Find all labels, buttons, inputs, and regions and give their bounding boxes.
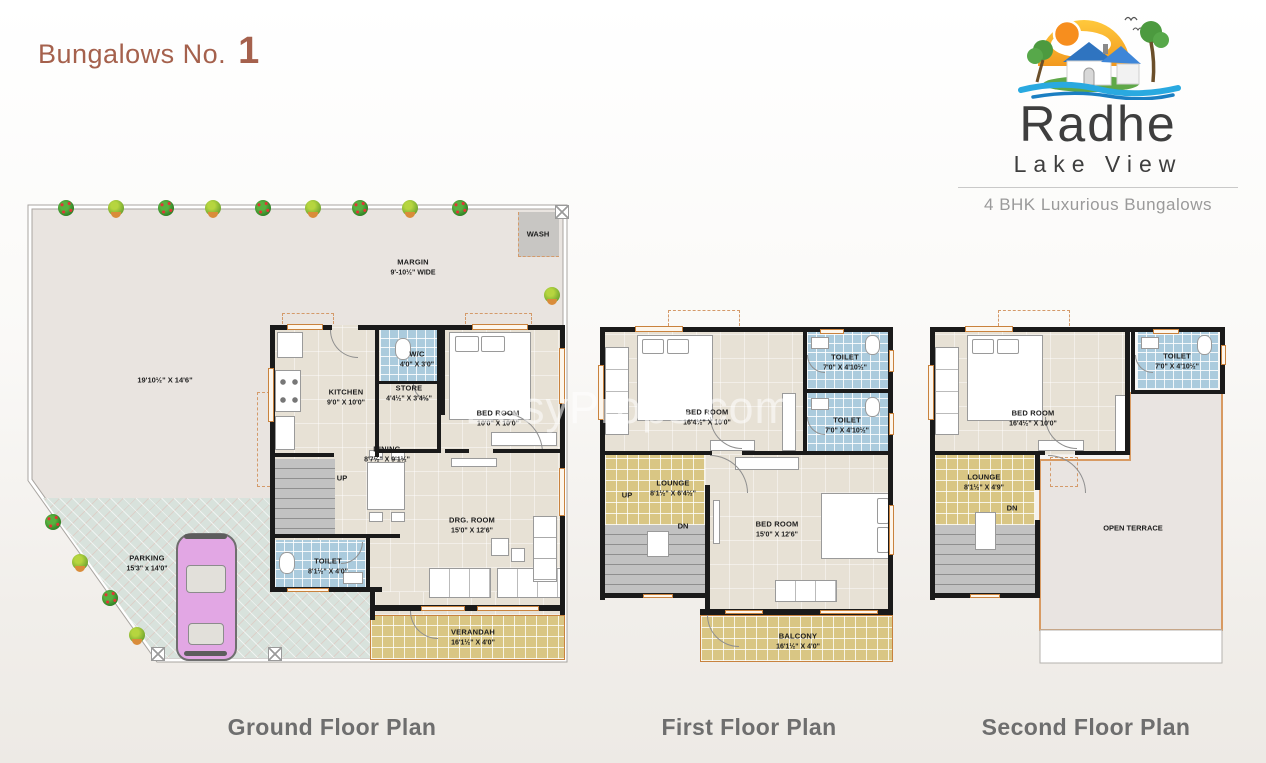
window xyxy=(477,606,539,611)
wall xyxy=(1035,520,1040,598)
wall xyxy=(930,451,1045,455)
logo-subtitle: Lake View xyxy=(950,151,1246,178)
wall xyxy=(1075,451,1130,455)
room-label-wc: W/C 4'0" X 3'0" xyxy=(400,349,434,370)
room-label-balcony: BALCONY 16'1½" X 4'0" xyxy=(776,631,820,652)
washbasin-icon xyxy=(1141,337,1159,349)
caption-second-floor: Second Floor Plan xyxy=(982,714,1191,741)
shelf xyxy=(533,516,557,582)
window xyxy=(1153,329,1179,334)
logo-graphic-icon xyxy=(1013,4,1183,100)
wall xyxy=(358,325,565,330)
wall xyxy=(1035,455,1040,490)
window xyxy=(643,594,673,598)
wall xyxy=(1131,332,1135,394)
washbasin-icon xyxy=(811,337,829,349)
wall xyxy=(705,485,710,609)
plant-icon xyxy=(452,200,468,216)
projection-dashed xyxy=(465,313,532,324)
window xyxy=(421,606,465,611)
projection-dashed xyxy=(668,310,740,326)
car-icon xyxy=(176,533,237,661)
second-floor-plan: BED ROOM 16'4½" X 10'0" TOILET 7'0" X 4'… xyxy=(925,305,1240,675)
wall xyxy=(270,453,334,457)
plant-icon xyxy=(58,200,74,216)
plant-icon xyxy=(45,514,61,530)
wall xyxy=(742,451,890,455)
pillow-icon xyxy=(997,339,1019,354)
stairs-up-label: UP xyxy=(337,474,347,483)
window xyxy=(559,468,565,516)
window xyxy=(268,368,274,422)
wall xyxy=(366,538,370,592)
room-label-store: STORE 4'4½" X 3'4½" xyxy=(386,383,432,404)
stairs-dn-label: DN xyxy=(678,522,689,531)
caption-ground-floor: Ground Floor Plan xyxy=(228,714,437,741)
room-label-toilet: TOILET 8'1½" X 4'0" xyxy=(308,556,348,577)
stairs-dn-label: DN xyxy=(1007,504,1018,513)
gate-marker-icon xyxy=(555,205,569,219)
toilet-pot-icon xyxy=(279,552,295,574)
staircase xyxy=(272,459,335,534)
page-title: Bungalows No. 1 xyxy=(38,30,259,73)
room-label-toilet2: TOILET 7'0" X 4'10½" xyxy=(825,415,869,436)
logo-divider xyxy=(958,187,1238,188)
window xyxy=(970,594,1000,598)
title-number: 1 xyxy=(238,30,259,73)
wall xyxy=(1131,390,1225,394)
plant-icon xyxy=(402,200,418,216)
plant-icon xyxy=(129,627,145,643)
window xyxy=(820,610,878,614)
title-text: Bungalows No. xyxy=(38,39,226,70)
wardrobe xyxy=(735,457,799,470)
window xyxy=(725,610,763,614)
stair-landing xyxy=(975,512,996,550)
window xyxy=(287,588,329,592)
window xyxy=(889,505,894,555)
open-terrace-label: OPEN TERRACE xyxy=(1103,524,1163,533)
coffee-table-icon xyxy=(491,538,509,556)
wall xyxy=(270,534,400,538)
window xyxy=(889,350,894,372)
chair-icon xyxy=(369,512,383,522)
room-label-toilet: TOILET 7'0" X 4'10½" xyxy=(1155,351,1199,372)
toilet-pot-icon xyxy=(1197,335,1212,355)
dining-table-icon xyxy=(367,462,405,510)
window xyxy=(287,324,323,330)
window xyxy=(820,329,844,334)
plant-icon xyxy=(72,554,88,570)
pillow-icon xyxy=(667,339,689,354)
gate-marker-icon xyxy=(151,647,165,661)
sofa-icon xyxy=(935,347,959,435)
coffee-table-icon xyxy=(511,548,525,562)
plant-icon xyxy=(255,200,271,216)
plant-icon xyxy=(352,200,368,216)
plant-icon xyxy=(158,200,174,216)
wall xyxy=(441,325,445,415)
plant-icon xyxy=(205,200,221,216)
room-label-lounge: LOUNGE 8'1½" X 6'4½" xyxy=(650,478,696,499)
window xyxy=(1221,345,1226,365)
room-label-parking: PARKING 15'3" x 14'0" xyxy=(126,553,167,574)
wall xyxy=(493,449,565,453)
projection-dashed xyxy=(282,313,334,324)
window xyxy=(928,365,934,420)
wall xyxy=(1125,327,1130,455)
wall xyxy=(375,325,379,457)
wall xyxy=(600,451,712,455)
room-label-kitchen: KITCHEN 9'0" X 10'0" xyxy=(327,387,365,408)
stair-landing xyxy=(647,531,669,557)
logo-tagline: 4 BHK Luxurious Bungalows xyxy=(950,195,1246,215)
wall xyxy=(807,389,888,393)
floorplan-sheet: Bungalows No. 1 xyxy=(0,0,1266,763)
room-label-toilet1: TOILET 7'0" X 4'10½" xyxy=(823,352,867,373)
window xyxy=(635,326,683,332)
room-label-bedroom2: BED ROOM 15'0" X 12'6" xyxy=(756,519,799,540)
pillow-icon xyxy=(481,336,505,352)
pillow-icon xyxy=(972,339,994,354)
gate-marker-icon xyxy=(268,647,282,661)
first-floor-plan: BED ROOM 16'4½" X 10'0" TOILET 7'0" X 4'… xyxy=(595,305,905,675)
projection-dashed xyxy=(998,310,1070,326)
plant-icon xyxy=(544,287,560,303)
plant-icon xyxy=(102,590,118,606)
caption-first-floor: First Floor Plan xyxy=(661,714,836,741)
toilet-pot-icon xyxy=(865,397,880,417)
sink-icon xyxy=(277,332,303,358)
room-label-dining: DINING 8'7½" X 9'1½" xyxy=(364,444,410,465)
window xyxy=(472,324,528,330)
plant-icon xyxy=(108,200,124,216)
room-label-verandah: VERANDAH 16'1½" X 4'0" xyxy=(451,627,495,648)
toilet-pot-icon xyxy=(865,335,880,355)
wash-label: WASH xyxy=(527,230,550,239)
plot-dimension-label: 19'10½" X 14'6" xyxy=(137,376,192,385)
room-label-drawing-room: DRG. ROOM 15'0" X 12'6" xyxy=(449,515,495,536)
sofa-icon xyxy=(775,580,837,602)
wall xyxy=(445,449,469,453)
tv-unit xyxy=(451,458,497,467)
sofa-icon xyxy=(429,568,491,598)
brand-logo: Radhe Lake View 4 BHK Luxurious Bungalow… xyxy=(950,4,1246,215)
window xyxy=(965,326,1013,332)
room-label-bedroom: BED ROOM 16'4½" X 10'0" xyxy=(1009,408,1057,429)
room-label-lounge: LOUNGE 8'1½" X 4'9" xyxy=(964,472,1004,493)
chair-icon xyxy=(391,512,405,522)
washbasin-icon xyxy=(811,398,829,410)
pillow-icon xyxy=(455,336,479,352)
counter xyxy=(275,416,295,450)
mirror xyxy=(713,500,720,544)
stove-icon xyxy=(275,370,301,412)
window xyxy=(889,413,894,435)
plant-icon xyxy=(305,200,321,216)
pillow-icon xyxy=(642,339,664,354)
logo-brand-name: Radhe xyxy=(950,99,1246,149)
wall xyxy=(370,587,375,620)
stairs-up-label: UP xyxy=(622,491,632,500)
wall xyxy=(270,325,275,592)
watermark: EasyProps.com xyxy=(465,382,793,434)
room-label-margin: MARGIN 9'-10½" WIDE xyxy=(390,257,435,278)
